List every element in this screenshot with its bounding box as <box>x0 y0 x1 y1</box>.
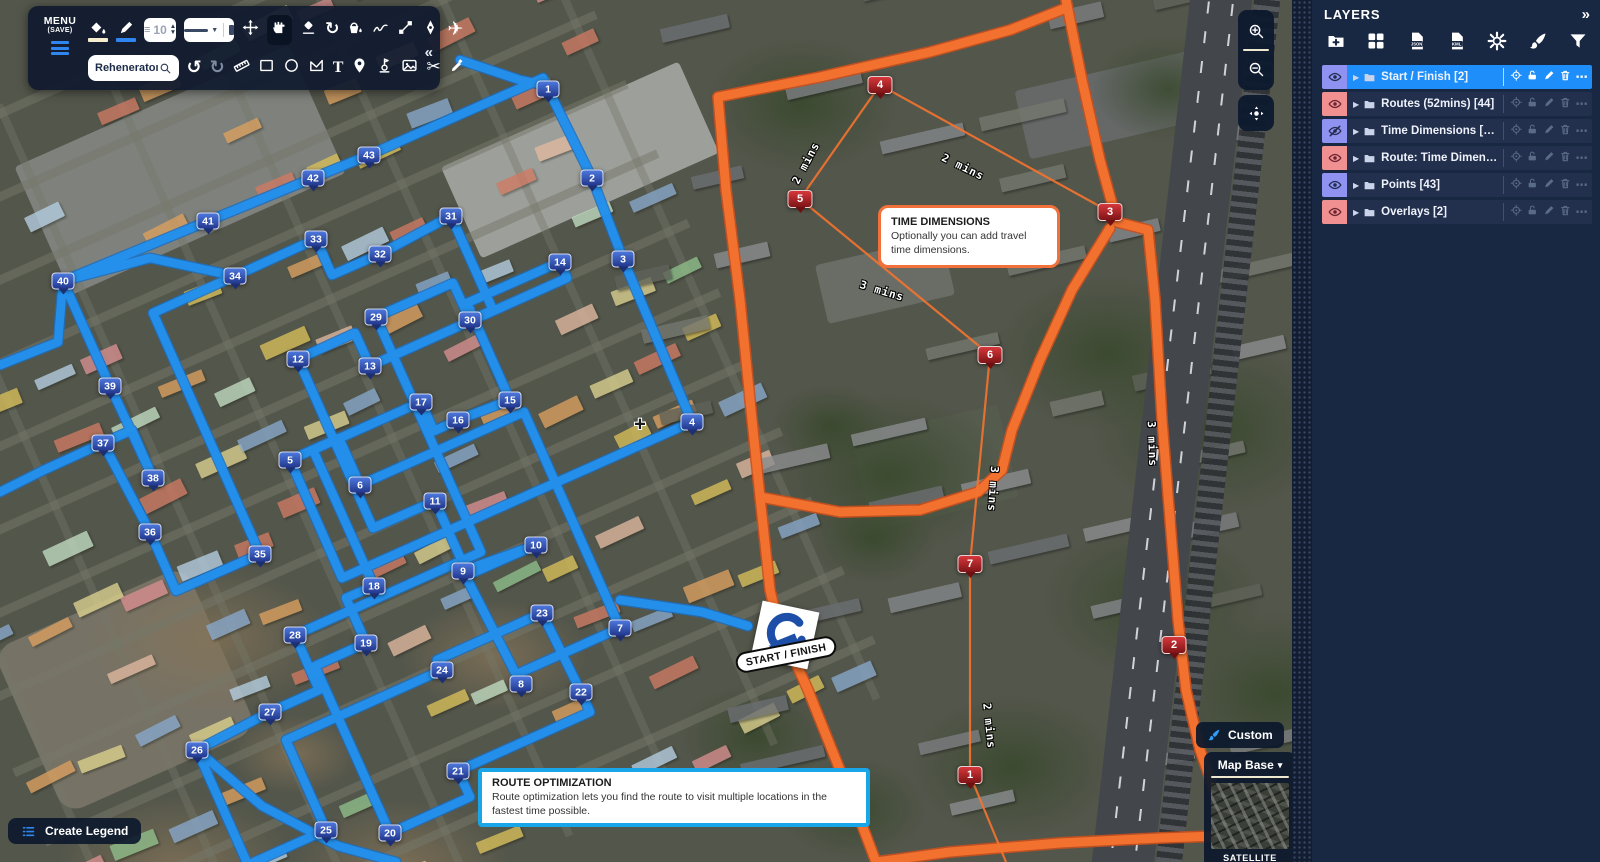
layer-trash-button[interactable] <box>1559 176 1572 194</box>
lock-icon <box>1526 150 1539 163</box>
layer-label: Time Dimensions [50] <box>1381 125 1497 137</box>
scribble-tool-icon <box>372 19 389 36</box>
layer-visibility-toggle[interactable] <box>1322 173 1347 197</box>
layer-actions: ⋯ <box>1503 149 1589 167</box>
point-marker[interactable]: 6 <box>349 477 372 494</box>
point-number: 31 <box>445 210 457 222</box>
point-number: 41 <box>202 215 214 227</box>
lock-icon <box>1526 96 1539 109</box>
point-marker[interactable]: 41 <box>197 213 220 230</box>
point-marker[interactable]: 40 <box>52 273 75 290</box>
point-number: 26 <box>191 744 203 756</box>
layers-title: LAYERS <box>1324 7 1380 22</box>
more-icon: ⋯ <box>1576 71 1589 84</box>
point-number: 42 <box>307 172 319 184</box>
pencil-icon <box>118 19 135 36</box>
point-number: 25 <box>320 824 332 836</box>
point-number: 18 <box>368 580 380 592</box>
layer-lock-button[interactable] <box>1526 149 1539 167</box>
point-number: 39 <box>104 380 116 392</box>
layer-lock-button[interactable] <box>1526 203 1539 221</box>
point-number: 15 <box>504 394 516 406</box>
rectangle-tool-icon <box>258 57 275 74</box>
redo-button[interactable]: ↻ <box>210 59 225 78</box>
pan-locate-button[interactable] <box>1238 95 1274 131</box>
more-icon: ⋯ <box>1576 179 1589 192</box>
layer-label: Routes (52mins) [44] <box>1381 98 1497 110</box>
point-number: 2 <box>589 172 595 184</box>
move-tool-icon <box>242 19 259 36</box>
layer-visibility-toggle[interactable] <box>1322 119 1347 143</box>
map-base-label: Map Base <box>1218 758 1274 772</box>
point-marker[interactable]: 43 <box>358 147 381 164</box>
point-marker[interactable]: 30 <box>459 312 482 329</box>
layers-toolbar: JSONKML <box>1322 23 1592 65</box>
pencil-icon <box>1543 204 1556 217</box>
point-number: 35 <box>254 548 266 560</box>
image-tool-button[interactable] <box>401 57 418 79</box>
layer-label: Start / Finish [2] <box>1381 71 1497 83</box>
pin-flag-tool-button[interactable] <box>376 57 393 79</box>
pencil-icon <box>1543 150 1556 163</box>
filter-funnel-icon <box>1568 31 1588 51</box>
paint-brush-icon <box>1528 31 1548 51</box>
paint-brush-button[interactable] <box>1528 31 1548 56</box>
layout-grid-icon <box>1366 31 1386 51</box>
map-canvas[interactable]: START / FINISH TIME DIMENSIONS Optionall… <box>0 0 1292 862</box>
trash-icon <box>1559 123 1572 136</box>
point-marker[interactable]: 11 <box>424 493 447 510</box>
zoom-in-icon <box>1248 23 1265 40</box>
layer-visibility-toggle[interactable] <box>1322 200 1347 224</box>
ruler-tool-button[interactable] <box>233 57 250 79</box>
point-number: 6 <box>357 479 363 491</box>
layer-rows: ▶Start / Finish [2]⋯▶Routes (52mins) [44… <box>1322 65 1592 224</box>
toolbar-collapse-button[interactable]: « <box>425 44 433 61</box>
pan-tool-icon <box>271 19 288 36</box>
stop-number: 4 <box>877 79 883 91</box>
layer-actions: ⋯ <box>1503 203 1589 221</box>
search-value: Reheneratoı <box>95 62 159 74</box>
zoom-out-icon <box>1248 61 1265 78</box>
target-icon <box>1510 150 1523 163</box>
refresh-tool-button[interactable]: ↻ <box>325 21 339 39</box>
menu-button[interactable]: MENU (SAVE) <box>37 15 83 58</box>
fill-icon <box>90 19 107 36</box>
satellite-thumbnail[interactable] <box>1211 783 1289 849</box>
route-stop-marker[interactable]: 1 <box>958 766 983 784</box>
layer-label: Points [43] <box>1381 179 1497 191</box>
point-number: 17 <box>415 396 427 408</box>
connector-tool-icon <box>397 19 414 36</box>
layer-visibility-toggle[interactable] <box>1322 146 1347 170</box>
route-stop-marker[interactable]: 5 <box>788 190 813 208</box>
more-icon: ⋯ <box>1576 125 1589 138</box>
point-number: 38 <box>147 472 159 484</box>
paint-brush-icon <box>1207 728 1221 742</box>
point-number: 36 <box>144 526 156 538</box>
line-style-dropdown[interactable]: ▼ <box>184 18 234 42</box>
point-marker[interactable]: 8 <box>510 676 533 693</box>
layer-row[interactable]: ▶Overlays [2]⋯ <box>1322 200 1592 224</box>
point-marker[interactable]: 28 <box>284 627 307 644</box>
point-marker[interactable]: 29 <box>365 309 388 326</box>
filter-funnel-button[interactable] <box>1568 31 1588 56</box>
custom-style-button[interactable]: Custom <box>1196 722 1284 748</box>
time-dimension-lines[interactable] <box>800 85 1110 862</box>
stop-number: 3 <box>1107 206 1113 218</box>
undo-icon: ↺ <box>187 59 202 77</box>
layer-row[interactable]: ▶Start / Finish [2]⋯ <box>1322 65 1592 89</box>
trash-icon <box>1559 69 1572 82</box>
text-tool-icon: T <box>333 60 344 76</box>
kml-file-button[interactable]: KML <box>1447 31 1467 56</box>
point-marker[interactable]: 2 <box>581 170 604 187</box>
zoom-in-button[interactable] <box>1238 13 1274 49</box>
layer-actions: ⋯ <box>1503 122 1589 140</box>
layer-more-button[interactable]: ⋯ <box>1576 122 1589 140</box>
point-marker[interactable]: 33 <box>305 231 328 248</box>
kml-file-icon: KML <box>1447 31 1467 51</box>
point-marker[interactable]: 22 <box>570 684 593 701</box>
toolbar-row-1: ≡ 10 ▲▼ ▼ ↻✈ <box>88 12 416 48</box>
layers-panel: LAYERS » JSONKML ▶Start / Finish [2]⋯▶Ro… <box>1312 0 1600 862</box>
map-base-selector[interactable]: Map Base ▾ SATELLITE <box>1204 752 1292 862</box>
point-marker[interactable]: 34 <box>224 268 247 285</box>
point-number: 29 <box>370 311 382 323</box>
point-marker[interactable]: 37 <box>92 435 115 452</box>
pencil-icon <box>1543 69 1556 82</box>
json-file-icon: JSON <box>1407 31 1427 51</box>
point-marker[interactable]: 9 <box>452 563 475 580</box>
line-sample <box>184 29 208 32</box>
marker-tip-icon <box>229 25 234 35</box>
eraser-tool-button[interactable] <box>300 19 317 41</box>
point-number: 16 <box>452 414 464 426</box>
layer-row[interactable]: ▶Routes (52mins) [44]⋯ <box>1322 92 1592 116</box>
folder-icon <box>1363 71 1376 84</box>
point-number: 14 <box>554 256 566 268</box>
circle-tool-icon <box>283 57 300 74</box>
layer-more-button[interactable]: ⋯ <box>1576 68 1589 86</box>
stop-number: 2 <box>1171 639 1177 651</box>
point-number: 30 <box>464 314 476 326</box>
svg-text:JSON: JSON <box>1411 42 1422 47</box>
point-number: 33 <box>310 233 322 245</box>
layer-actions: ⋯ <box>1503 95 1589 113</box>
eye-icon <box>1328 151 1342 165</box>
point-marker[interactable]: 4 <box>681 414 704 431</box>
panel-collapse-button[interactable]: » <box>1582 6 1590 23</box>
point-marker[interactable]: 5 <box>279 452 302 469</box>
eye-icon <box>1328 70 1342 84</box>
point-marker[interactable]: 20 <box>379 825 402 842</box>
layer-label: Route: Time Dimensio... <box>1381 152 1497 164</box>
travel-time-label: 3 mins <box>1145 421 1160 467</box>
layer-row[interactable]: ▶Route: Time Dimensio...⋯ <box>1322 146 1592 170</box>
point-number: 20 <box>384 827 396 839</box>
point-number: 11 <box>429 495 440 507</box>
expand-caret-icon[interactable]: ▶ <box>1353 181 1359 190</box>
layer-pencil-button[interactable] <box>1543 122 1556 140</box>
scribble-tool-button[interactable] <box>372 19 389 41</box>
layer-label: Overlays [2] <box>1381 206 1497 218</box>
stroke-swatch[interactable] <box>116 38 136 42</box>
layer-lock-button[interactable] <box>1526 95 1539 113</box>
chevron-down-icon: ▼ <box>211 27 218 34</box>
layer-lock-button[interactable] <box>1526 68 1539 86</box>
locate-icon <box>1248 105 1265 122</box>
folder-icon <box>1363 179 1376 192</box>
layer-trash-button[interactable] <box>1559 68 1572 86</box>
point-number: 22 <box>575 686 587 698</box>
folder-icon <box>1363 98 1376 111</box>
search-icon <box>159 62 172 75</box>
layer-actions: ⋯ <box>1503 68 1589 86</box>
pin-tool-icon <box>351 57 368 74</box>
point-number: 4 <box>689 416 695 428</box>
crosshair-cursor: + <box>634 414 646 437</box>
layer-target-button[interactable] <box>1510 122 1523 140</box>
point-marker[interactable]: 17 <box>410 394 433 411</box>
layer-more-button[interactable]: ⋯ <box>1576 95 1589 113</box>
point-marker[interactable]: 3 <box>612 251 635 268</box>
point-marker[interactable]: 35 <box>249 546 272 563</box>
route-stop-marker[interactable]: 6 <box>978 346 1003 364</box>
expand-caret-icon[interactable]: ▶ <box>1353 100 1359 109</box>
drawing-toolbar: MENU (SAVE) ≡ 10 ▲▼ <box>28 6 440 90</box>
point-marker[interactable]: 23 <box>531 605 554 622</box>
layer-pencil-button[interactable] <box>1543 68 1556 86</box>
point-marker[interactable]: 38 <box>142 470 165 487</box>
layer-lock-button[interactable] <box>1526 176 1539 194</box>
target-icon <box>1510 69 1523 82</box>
callout-body: Optionally you can add travel time dimen… <box>891 230 1047 257</box>
point-marker[interactable]: 32 <box>369 246 392 263</box>
point-number: 32 <box>374 248 386 260</box>
trash-icon <box>1559 204 1572 217</box>
point-marker[interactable]: 26 <box>186 742 209 759</box>
layer-target-button[interactable] <box>1510 95 1523 113</box>
pen-tool-icon <box>422 19 439 36</box>
redo-icon: ↻ <box>210 59 225 77</box>
stop-number: 6 <box>987 349 993 361</box>
point-marker[interactable]: 14 <box>549 254 572 271</box>
point-marker[interactable]: 31 <box>440 208 463 225</box>
target-icon <box>1510 96 1523 109</box>
point-marker[interactable]: 12 <box>287 351 310 368</box>
route-stop-marker[interactable]: 2 <box>1162 636 1187 654</box>
more-icon: ⋯ <box>1576 98 1589 111</box>
callout-title: TIME DIMENSIONS <box>891 216 1047 228</box>
point-marker[interactable]: 13 <box>359 358 382 375</box>
zoom-out-button[interactable] <box>1238 51 1274 87</box>
point-number: 10 <box>530 539 542 551</box>
layer-more-button[interactable]: ⋯ <box>1576 176 1589 194</box>
point-number: 21 <box>452 765 464 777</box>
create-legend-button[interactable]: Create Legend <box>8 818 141 844</box>
pan-tool-button[interactable] <box>267 15 292 45</box>
eyedropper-tool-button[interactable] <box>449 57 466 79</box>
expand-caret-icon[interactable]: ▶ <box>1353 127 1359 136</box>
lines-icon: ≡ <box>144 24 150 36</box>
layer-visibility-toggle[interactable] <box>1322 65 1347 89</box>
blue-route[interactable] <box>0 60 748 862</box>
layer-more-button[interactable]: ⋯ <box>1576 203 1589 221</box>
eye-icon <box>1328 178 1342 192</box>
create-legend-label: Create Legend <box>45 824 128 838</box>
point-marker[interactable]: 36 <box>139 524 162 541</box>
zoom-controls <box>1238 10 1274 90</box>
trash-icon <box>1559 177 1572 190</box>
plane-tool-button[interactable]: ✈ <box>447 20 463 40</box>
point-marker[interactable]: 21 <box>447 763 470 780</box>
pin-flag-tool-icon <box>376 57 393 74</box>
plane-tool-icon: ✈ <box>447 20 463 39</box>
scissors-tool-icon: ✂ <box>426 59 440 76</box>
custom-label: Custom <box>1228 728 1273 742</box>
app: START / FINISH TIME DIMENSIONS Optionall… <box>0 0 1600 862</box>
add-folder-button[interactable] <box>1326 31 1346 56</box>
point-number: 37 <box>97 437 109 449</box>
layer-trash-button[interactable] <box>1559 149 1572 167</box>
folder-icon <box>1363 125 1376 138</box>
fill-swatch[interactable] <box>88 38 108 42</box>
satellite-label: SATELLITE <box>1211 853 1289 862</box>
time-dimensions-callout[interactable]: TIME DIMENSIONS Optionally you can add t… <box>878 205 1060 268</box>
eye-icon <box>1328 97 1342 111</box>
route-stop-marker[interactable]: 7 <box>958 555 983 573</box>
layer-pencil-button[interactable] <box>1543 203 1556 221</box>
move-tool-button[interactable] <box>242 19 259 41</box>
hamburger-icon[interactable] <box>51 41 69 55</box>
layer-more-button[interactable]: ⋯ <box>1576 149 1589 167</box>
toolbar-tools-1: ↻✈ <box>242 15 463 45</box>
toolbar-row-2: Reheneratoı ↺↻T✂ <box>88 52 416 84</box>
point-marker[interactable]: 16 <box>447 412 470 429</box>
callout-body: Route optimization lets you find the rou… <box>492 791 856 818</box>
divider <box>223 23 224 37</box>
point-marker[interactable]: 10 <box>525 537 548 554</box>
svg-text:KML: KML <box>1452 42 1462 47</box>
point-marker[interactable]: 18 <box>363 578 386 595</box>
point-number: 8 <box>518 678 524 690</box>
polygon-tool-button[interactable] <box>308 57 325 79</box>
legend-list-icon <box>21 824 36 839</box>
layer-trash-button[interactable] <box>1559 203 1572 221</box>
lock-icon <box>1526 123 1539 136</box>
layer-target-button[interactable] <box>1510 203 1523 221</box>
bucket-tool-icon <box>347 19 364 36</box>
layer-pencil-button[interactable] <box>1543 149 1556 167</box>
add-folder-icon <box>1326 31 1346 51</box>
point-marker[interactable]: 27 <box>259 704 282 721</box>
polygon-tool-icon <box>308 57 325 74</box>
point-number: 24 <box>436 664 448 676</box>
chevron-down-icon: ▾ <box>1278 760 1283 771</box>
point-number: 19 <box>360 637 372 649</box>
layer-row[interactable]: ▶Time Dimensions [50]⋯ <box>1322 119 1592 143</box>
point-marker[interactable]: 39 <box>99 378 122 395</box>
lock-icon <box>1526 204 1539 217</box>
layer-pencil-button[interactable] <box>1543 95 1556 113</box>
json-file-button[interactable]: JSON <box>1407 31 1427 56</box>
trash-icon <box>1559 96 1572 109</box>
spinner-arrows[interactable]: ▲▼ <box>170 24 176 37</box>
bucket-tool-button[interactable] <box>347 19 364 41</box>
layer-lock-button[interactable] <box>1526 122 1539 140</box>
layer-visibility-toggle[interactable] <box>1322 92 1347 116</box>
layer-target-button[interactable] <box>1510 68 1523 86</box>
rectangle-tool-button[interactable] <box>258 57 275 79</box>
point-marker[interactable]: 7 <box>609 620 632 637</box>
connector-tool-button[interactable] <box>397 19 414 41</box>
scissors-tool-button[interactable]: ✂ <box>426 59 440 77</box>
stroke-width-value: 10 <box>153 23 166 37</box>
eye-icon <box>1328 205 1342 219</box>
fill-color-tool[interactable] <box>88 19 108 42</box>
search-input[interactable]: Reheneratoı <box>88 55 179 81</box>
point-marker[interactable]: 24 <box>431 662 454 679</box>
lock-icon <box>1526 177 1539 190</box>
stop-number: 1 <box>967 769 973 781</box>
point-marker[interactable]: 42 <box>302 170 325 187</box>
settings-gear-button[interactable] <box>1487 31 1507 56</box>
pencil-icon <box>1543 177 1556 190</box>
callout-title: ROUTE OPTIMIZATION <box>492 777 856 789</box>
eyedropper-tool-icon <box>449 57 466 74</box>
point-marker[interactable]: 25 <box>315 822 338 839</box>
route-stop-marker[interactable]: 4 <box>868 76 893 94</box>
point-number: 23 <box>536 607 548 619</box>
layer-actions: ⋯ <box>1503 176 1589 194</box>
orange-route[interactable] <box>718 0 1245 862</box>
trash-icon <box>1559 150 1572 163</box>
circle-tool-button[interactable] <box>283 57 300 79</box>
target-icon <box>1510 123 1523 136</box>
text-tool-button[interactable]: T <box>333 59 344 77</box>
layer-target-button[interactable] <box>1510 149 1523 167</box>
point-number: 43 <box>363 149 375 161</box>
point-marker[interactable]: 1 <box>537 81 560 98</box>
expand-caret-icon[interactable]: ▶ <box>1353 208 1359 217</box>
folder-icon <box>1363 206 1376 219</box>
point-number: 34 <box>229 270 241 282</box>
stroke-color-tool[interactable] <box>116 19 136 42</box>
undo-button[interactable]: ↺ <box>187 59 202 78</box>
divider <box>1211 776 1289 778</box>
point-marker[interactable]: 15 <box>499 392 522 409</box>
point-marker[interactable]: 19 <box>355 635 378 652</box>
eraser-tool-icon <box>300 19 317 36</box>
point-number: 7 <box>617 622 623 634</box>
stroke-width-spinner[interactable]: ≡ 10 ▲▼ <box>144 18 176 42</box>
layout-grid-button[interactable] <box>1366 31 1386 56</box>
expand-caret-icon[interactable]: ▶ <box>1353 73 1359 82</box>
layer-trash-button[interactable] <box>1559 95 1572 113</box>
settings-gear-icon <box>1487 31 1507 51</box>
expand-caret-icon[interactable]: ▶ <box>1353 154 1359 163</box>
pen-tool-button[interactable] <box>422 19 439 41</box>
pin-tool-button[interactable] <box>351 57 368 79</box>
layer-target-button[interactable] <box>1510 176 1523 194</box>
route-stop-marker[interactable]: 3 <box>1098 203 1123 221</box>
panel-resize-handle[interactable] <box>1292 0 1312 862</box>
route-optimization-callout[interactable]: ROUTE OPTIMIZATION Route optimization le… <box>478 768 870 827</box>
layer-row[interactable]: ▶Points [43]⋯ <box>1322 173 1592 197</box>
layer-pencil-button[interactable] <box>1543 176 1556 194</box>
layer-trash-button[interactable] <box>1559 122 1572 140</box>
